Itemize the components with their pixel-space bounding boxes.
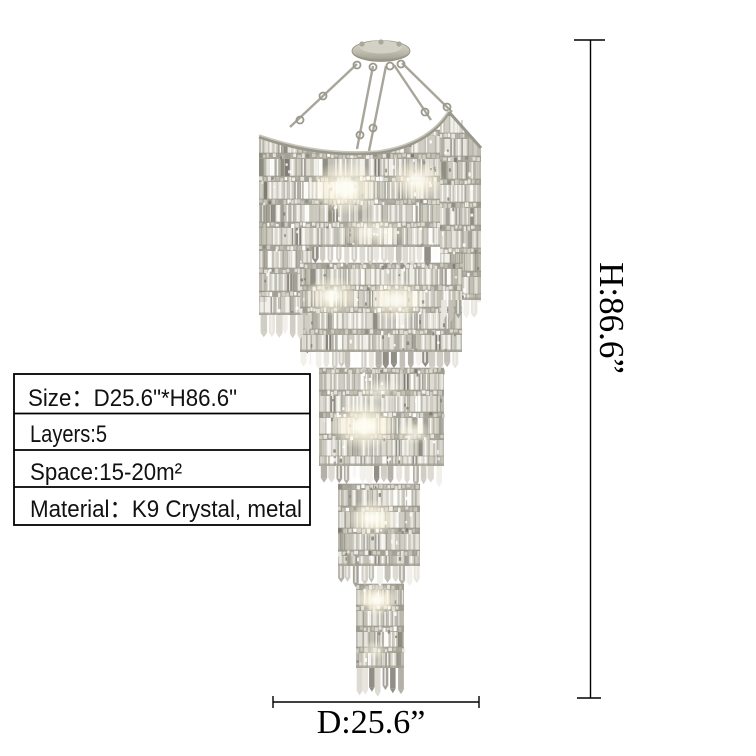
svg-text:Layers:5: Layers:5 bbox=[30, 421, 107, 448]
svg-text:Space:15-20m²: Space:15-20m² bbox=[30, 459, 182, 486]
svg-text:Material：K9 Crystal, metal: Material：K9 Crystal, metal bbox=[30, 496, 302, 523]
svg-text:H:86.6”: H:86.6” bbox=[592, 262, 631, 374]
svg-text:D:25.6”: D:25.6” bbox=[317, 704, 426, 741]
svg-text:Size：D25.6"*H86.6": Size：D25.6"*H86.6" bbox=[28, 385, 237, 412]
